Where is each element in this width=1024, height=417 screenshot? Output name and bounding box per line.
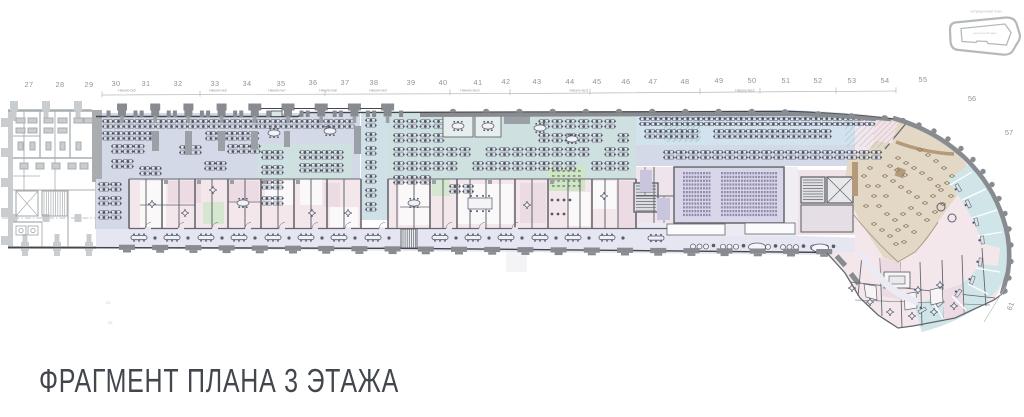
svg-text:53: 53: [847, 76, 856, 85]
svg-text:45: 45: [592, 77, 601, 86]
svg-text:40: 40: [438, 78, 447, 87]
svg-text:27: 27: [24, 80, 33, 89]
svg-text:52: 52: [813, 76, 822, 85]
svg-text:Начало-№12: Начало-№12: [735, 88, 754, 92]
svg-text:29: 29: [84, 80, 93, 89]
svg-text:ФРАГМЕНТ ПЛАНА 3 ЭТАЖА: ФРАГМЕНТ ПЛАНА 3 ЭТАЖА: [39, 363, 399, 400]
svg-text:54: 54: [880, 76, 889, 85]
svg-text:49: 49: [714, 76, 723, 85]
svg-text:28: 28: [55, 80, 64, 89]
svg-text:Начало-№6: Начало-№6: [209, 88, 227, 92]
svg-text:36: 36: [308, 78, 317, 87]
svg-text:39: 39: [406, 78, 415, 87]
svg-text:50: 50: [747, 76, 756, 85]
svg-text:44: 44: [565, 77, 574, 86]
svg-text:38: 38: [369, 78, 378, 87]
svg-text:ситуационный план: ситуационный план: [970, 10, 1001, 14]
svg-text:41: 41: [473, 78, 482, 87]
svg-text:Начало-№7: Начало-№7: [268, 88, 286, 92]
svg-text:внутренний двор: внутренний двор: [973, 31, 997, 35]
svg-text:Начало-№11: Начало-№11: [570, 88, 589, 92]
svg-text:Начало-№10: Начало-№10: [460, 88, 479, 92]
svg-text:Начало-№9: Начало-№9: [369, 88, 387, 92]
svg-text:Начало-№8: Начало-№8: [319, 88, 337, 92]
svg-text:24: 24: [106, 300, 111, 305]
svg-text:43: 43: [532, 77, 541, 86]
svg-text:25: 25: [108, 320, 113, 325]
svg-text:51: 51: [781, 76, 790, 85]
svg-text:56: 56: [968, 94, 976, 103]
svg-text:32: 32: [173, 79, 182, 88]
svg-text:35: 35: [276, 79, 285, 88]
svg-text:47: 47: [648, 77, 657, 86]
svg-text:42: 42: [501, 77, 510, 86]
svg-text:48: 48: [680, 77, 689, 86]
svg-text:57: 57: [1005, 128, 1013, 137]
svg-text:34: 34: [242, 79, 251, 88]
svg-text:46: 46: [621, 77, 630, 86]
svg-text:31: 31: [141, 79, 150, 88]
svg-text:Начало-№5: Начало-№5: [118, 88, 136, 92]
svg-text:55: 55: [918, 75, 927, 84]
svg-text:33: 33: [210, 79, 219, 88]
svg-text:30: 30: [111, 79, 120, 88]
svg-text:37: 37: [340, 78, 349, 87]
